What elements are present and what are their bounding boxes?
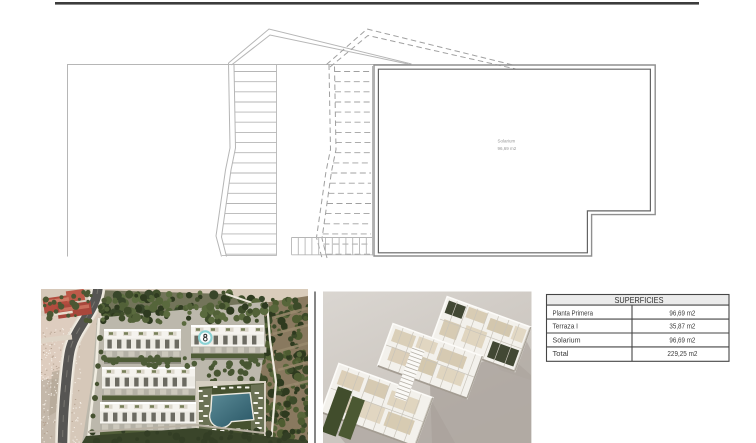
svg-text:96,69 m2: 96,69 m2: [498, 146, 517, 151]
svg-text:Planta Primera: Planta Primera: [553, 308, 594, 317]
svg-text:96,69 m2: 96,69 m2: [669, 308, 695, 317]
svg-text:96,69 m2: 96,69 m2: [669, 335, 695, 344]
svg-text:229,25 m2: 229,25 m2: [667, 349, 697, 358]
svg-text:Solarium: Solarium: [498, 139, 516, 144]
svg-text:SUPERFICIES: SUPERFICIES: [615, 296, 664, 305]
svg-text:Total: Total: [553, 349, 569, 358]
svg-text:Solarium: Solarium: [553, 335, 581, 344]
svg-text:35,87 m2: 35,87 m2: [669, 322, 695, 331]
svg-text:Terraza I: Terraza I: [553, 322, 579, 331]
